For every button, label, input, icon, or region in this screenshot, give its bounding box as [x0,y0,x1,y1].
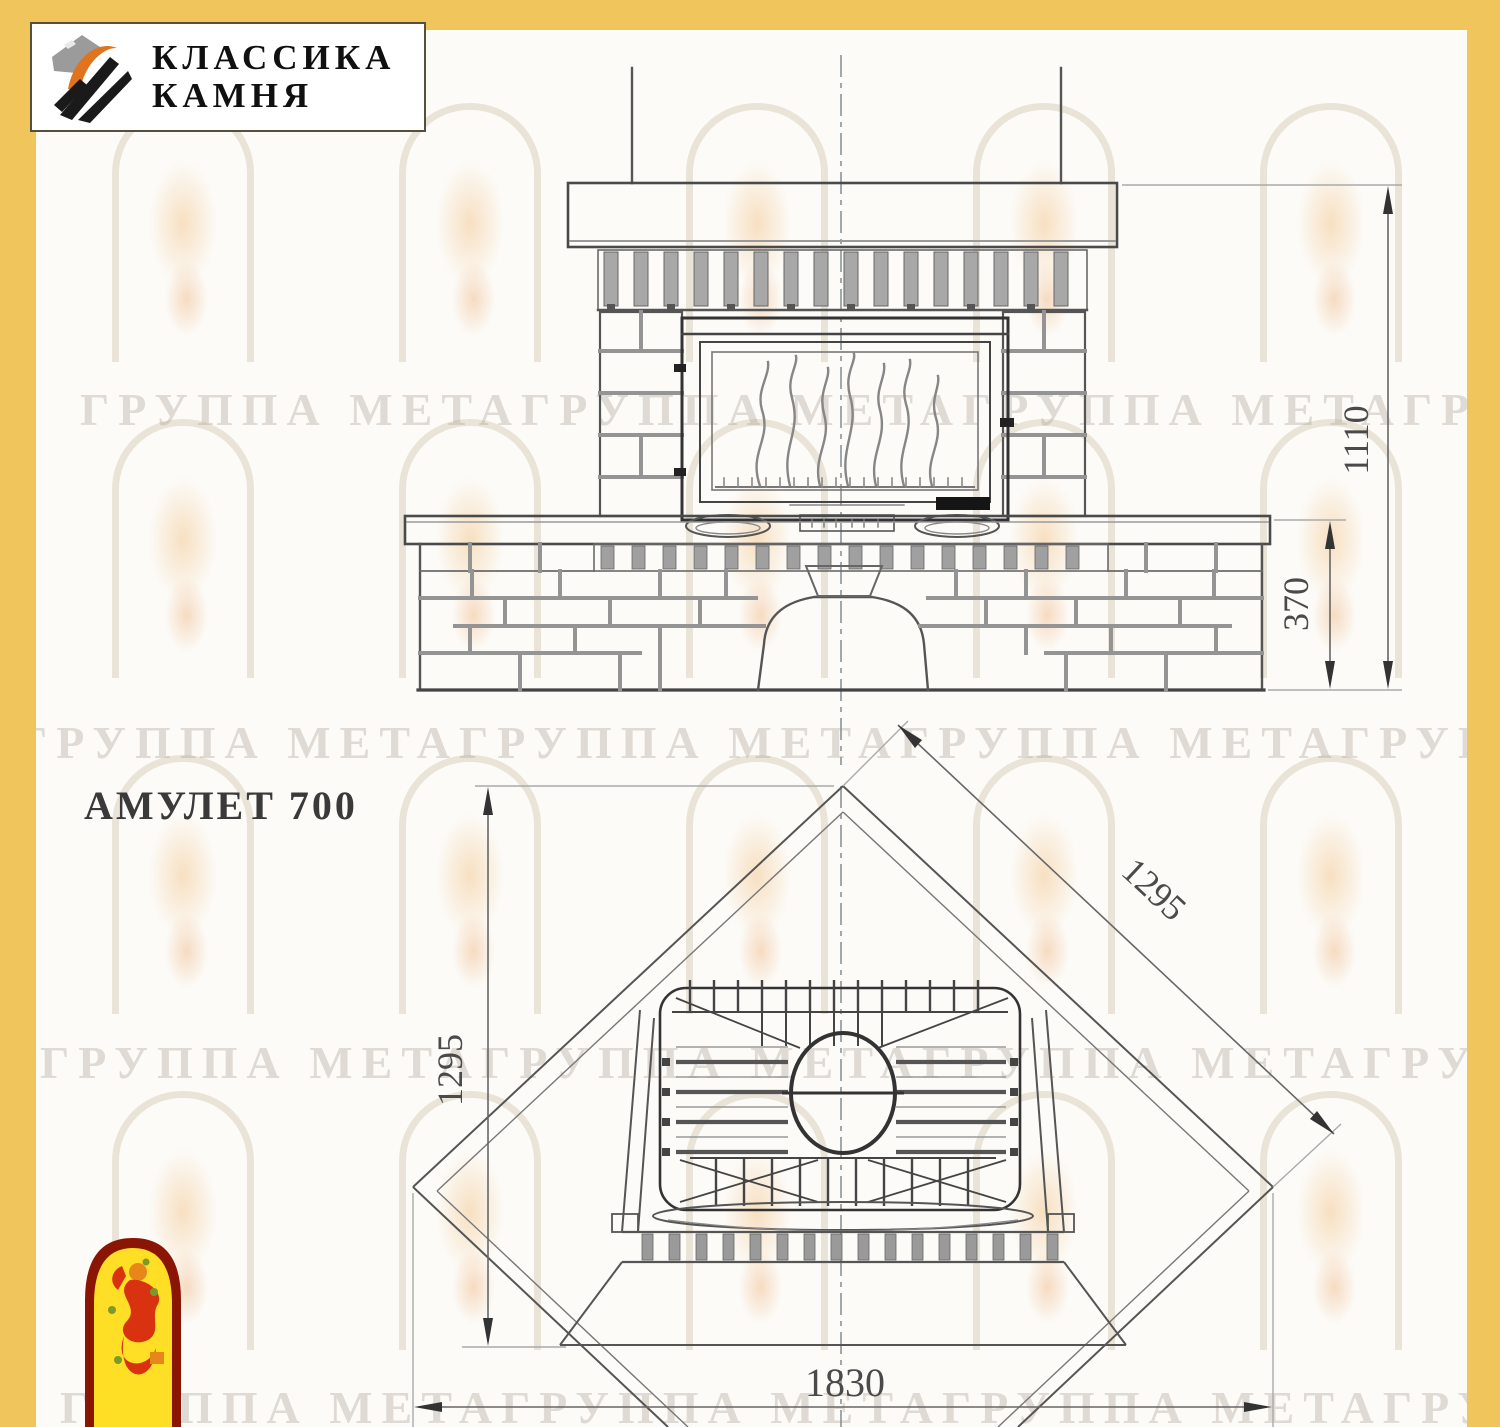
hinge-icon [674,364,686,372]
plan-insert-top-ticks [690,980,978,1012]
door-handle-icon [1000,418,1014,427]
svg-text:370: 370 [1276,577,1316,631]
svg-text:1110: 1110 [1336,405,1376,474]
dimension-plinth-height: 370 [1274,520,1346,689]
fireplace-technical-drawing: 1110 370 [0,0,1500,1427]
mantel-shelf [568,183,1117,247]
brick-pier-right [1003,312,1085,516]
hinge-icon [674,468,686,476]
dimension-overall-width: 1830 [413,1193,1273,1427]
page: ГРУППА МЕТАГРУППА МЕТАГРУППА МЕТАГРУППА … [0,0,1500,1427]
plan-inner-outline [437,812,1249,1427]
insert-nameplate [800,515,894,531]
front-view [405,68,1270,690]
svg-text:1295: 1295 [430,1034,470,1106]
insert-badge [936,497,990,510]
svg-text:1295: 1295 [1114,850,1194,928]
flame-decoration [757,354,939,486]
dimension-plan-diagonal: 1295 [843,721,1341,1187]
insert-front-curve [653,1202,1033,1230]
svg-text:1830: 1830 [805,1360,885,1405]
brick-pier-left [600,312,682,516]
wood-niche-arch [758,597,928,690]
plan-insert-top-view [653,980,1033,1231]
firebox-insert [674,318,1014,537]
plan-front-apron [560,1262,1126,1345]
mascot-firebird-arch [85,1238,181,1427]
mantel-dentil-row [598,250,1087,311]
